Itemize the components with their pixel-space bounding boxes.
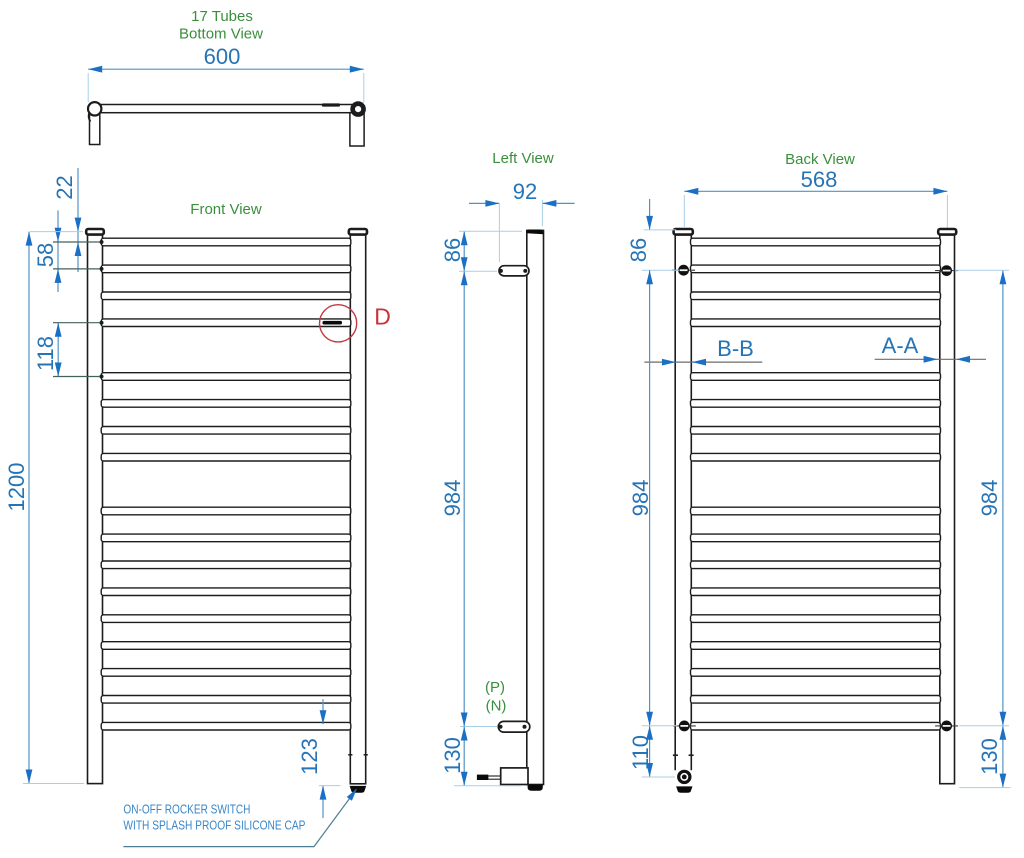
svg-text:984: 984 xyxy=(440,480,465,517)
svg-text:Front View: Front View xyxy=(190,201,262,218)
svg-text:1200: 1200 xyxy=(4,463,29,512)
svg-text:17 Tubes: 17 Tubes xyxy=(191,8,253,25)
svg-text:WITH SPLASH PROOF SILICONE CAP: WITH SPLASH PROOF SILICONE CAP xyxy=(123,818,305,833)
svg-text:130: 130 xyxy=(977,738,1002,775)
svg-text:984: 984 xyxy=(977,480,1002,517)
svg-text:B-B: B-B xyxy=(717,336,754,361)
svg-text:568: 568 xyxy=(801,167,838,192)
svg-text:Left View: Left View xyxy=(492,150,554,167)
svg-text:86: 86 xyxy=(626,238,651,262)
svg-text:123: 123 xyxy=(297,738,322,775)
svg-text:Bottom View: Bottom View xyxy=(179,26,263,43)
svg-text:ON-OFF ROCKER SWITCH: ON-OFF ROCKER SWITCH xyxy=(123,802,250,817)
svg-text:A-A: A-A xyxy=(882,333,919,358)
svg-text:D: D xyxy=(374,304,391,330)
svg-text:600: 600 xyxy=(204,44,241,69)
svg-text:(N): (N) xyxy=(486,698,507,715)
svg-text:58: 58 xyxy=(33,243,58,267)
svg-text:130: 130 xyxy=(440,737,465,774)
svg-text:Back View: Back View xyxy=(785,151,855,168)
svg-text:22: 22 xyxy=(52,175,77,199)
svg-text:92: 92 xyxy=(513,179,537,204)
svg-text:(P): (P) xyxy=(485,679,505,696)
svg-text:118: 118 xyxy=(33,336,58,371)
